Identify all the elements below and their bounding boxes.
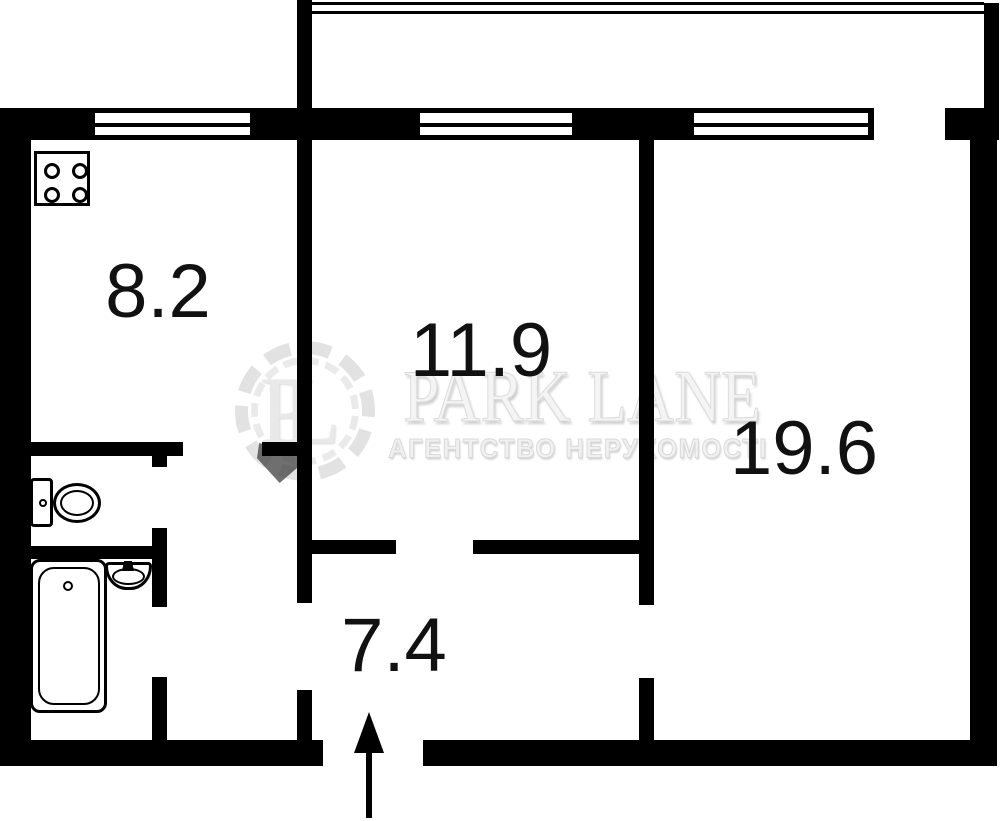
wall-wc-bath-divider [31,546,167,559]
wall-bedroom-living-upper [639,140,654,605]
kitchen-window-icon [95,113,250,135]
entry-arrow-shaft [366,750,372,818]
stove-burner-icon [44,163,60,179]
wall-corridor-stub [297,690,312,766]
wall-kitchen-bedroom [297,0,312,603]
wall-kitchen-bottom-stub [262,442,297,456]
wall-bottom-left-of-entry [0,740,323,766]
watermark-tagline: АГЕНТСТВО НЕРУХОМОСТІ [388,436,768,463]
wall-right [970,140,997,766]
window-pane-line [694,123,868,127]
stove-burner-icon [72,163,88,179]
wall-bedroom-bottom-right [473,540,639,554]
stove-burner-icon [44,187,60,203]
bedroom-window-icon [420,113,572,135]
wall-bedroom-living-lower [639,678,654,740]
room-label-kitchen: 8.2 [105,254,211,330]
balcony-railing-line-outer [312,2,984,5]
floor-plan: PL PARK LANE АГЕНТСТВО НЕРУХОМОСТІ [0,0,1000,821]
room-label-hallway: 7.4 [341,608,447,684]
wall-wc-right-lower [152,677,167,740]
toilet-bowl-inner-icon [60,490,94,516]
room-label-living-room: 19.6 [730,411,878,487]
wall-bedroom-bottom-left [312,540,396,554]
balcony-railing-line-inner [312,11,984,14]
wall-kitchen-bottom [31,442,183,456]
toilet-flush-button-icon [39,499,47,507]
wall-left [0,108,31,766]
stove-burner-icon [72,187,88,203]
balcony-wall-right [984,3,999,140]
bathtub-drain-icon [63,581,73,591]
window-pane-line [95,123,250,127]
living-room-window-icon [694,113,868,135]
wall-wc-right-middle [152,528,167,607]
balcony-door-opening [874,108,945,140]
room-label-bedroom: 11.9 [410,313,552,389]
wall-bottom-right-of-entry [423,740,997,766]
window-pane-line [420,123,572,127]
entry-arrow-icon [354,712,384,753]
stove-icon [34,151,90,206]
